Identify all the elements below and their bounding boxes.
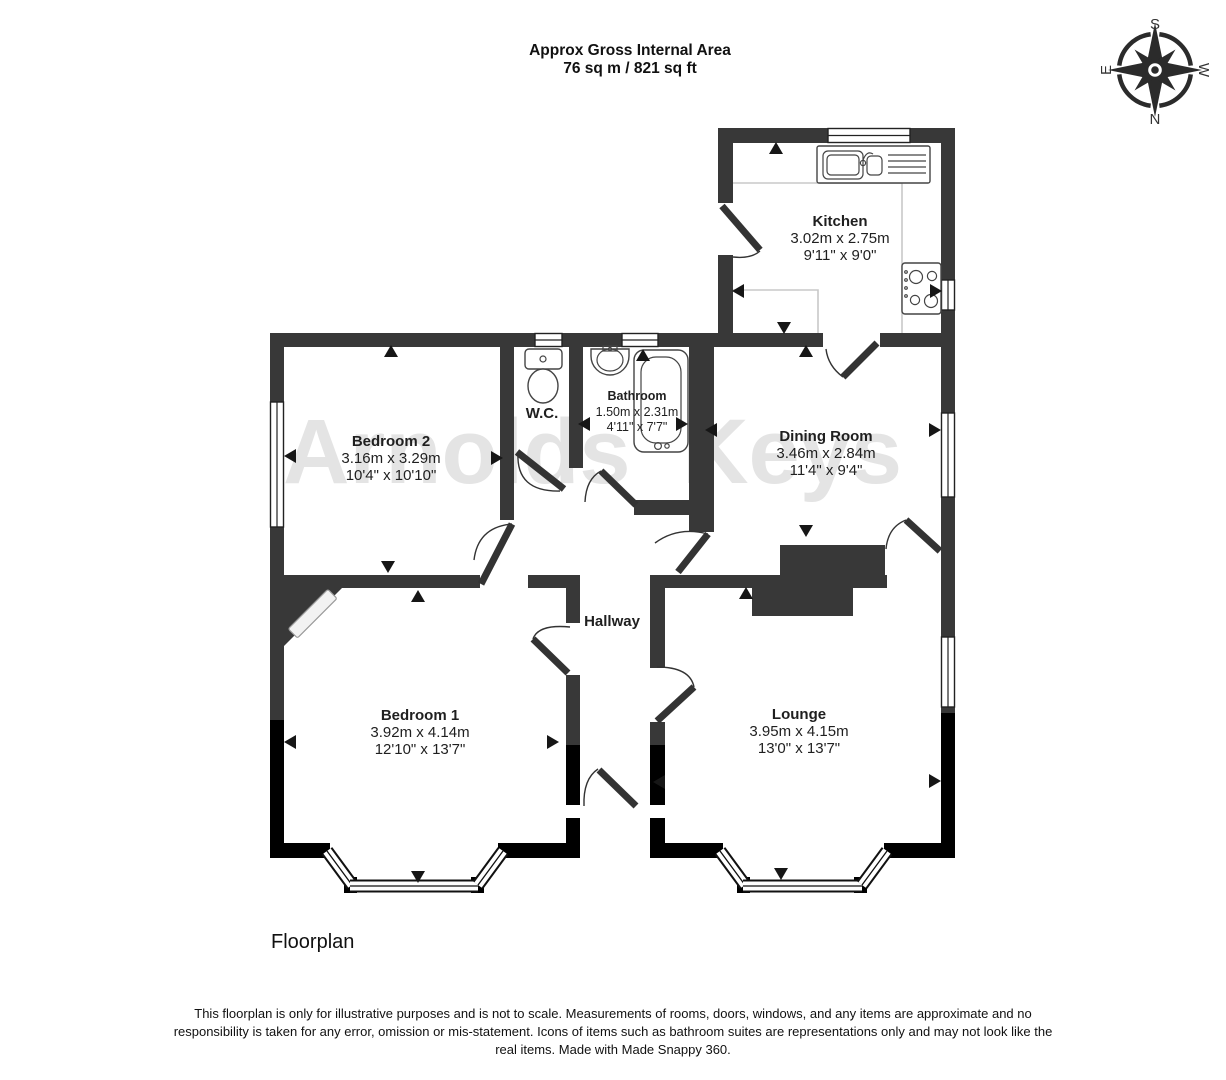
window-dining-right [942, 413, 955, 497]
arrow-right [929, 423, 941, 437]
window-bedroom2-left [271, 402, 284, 527]
room-dim-metric: 3.02m x 2.75m [790, 230, 889, 247]
disclaimer-text: This floorplan is only for illustrative … [173, 1005, 1053, 1059]
room-label-wc: W.C. [526, 405, 559, 422]
room-label-bedroom2: Bedroom 2 3.16m x 3.29m 10'4" x 10'10" [341, 433, 440, 484]
toilet-icon [525, 349, 562, 403]
door-wc [517, 452, 564, 491]
compass-letter-top: S [1150, 16, 1160, 33]
room-name: W.C. [526, 405, 559, 422]
floorplan-caption: Floorplan [271, 931, 354, 954]
compass-letter-bottom: N [1150, 110, 1161, 127]
room-dim-metric: 1.50m x 2.31m [596, 405, 679, 421]
door-lounge [657, 667, 694, 721]
room-name: Bedroom 1 [370, 707, 469, 724]
arrow-down [777, 322, 791, 334]
floorplan-page: Approx Gross Internal Area 76 sq m / 821… [0, 0, 1226, 1080]
bay-window-lounge [720, 851, 887, 886]
room-name: Hallway [584, 613, 640, 630]
title-line2: 76 sq m / 821 sq ft [230, 60, 1030, 78]
door-bedroom1 [533, 627, 570, 674]
compass-letter-right: W [1195, 63, 1212, 78]
arrow-left [284, 449, 296, 463]
room-dim-imperial: 13'0" x 13'7" [749, 740, 848, 757]
floorplan-drawing [0, 0, 1226, 1080]
compass-graphic: S N E W [1098, 16, 1212, 127]
arrow-up [411, 590, 425, 602]
kitchen-sink-icon [817, 146, 930, 183]
arrow-up [769, 142, 783, 154]
room-dim-imperial: 11'4" x 9'4" [776, 462, 875, 479]
basin-icon [591, 346, 629, 375]
title-line1: Approx Gross Internal Area [230, 42, 1030, 60]
window-bathroom [622, 334, 658, 347]
room-dim-metric: 3.16m x 3.29m [341, 450, 440, 467]
door-dining-lounge [886, 520, 940, 551]
arrow-left [732, 284, 744, 298]
room-dim-imperial: 10'4" x 10'10" [341, 467, 440, 484]
room-dim-imperial: 9'11" x 9'0" [790, 247, 889, 264]
room-dim-metric: 3.92m x 4.14m [370, 724, 469, 741]
room-dim-imperial: 12'10" x 13'7" [370, 741, 469, 758]
room-label-kitchen: Kitchen 3.02m x 2.75m 9'11" x 9'0" [790, 213, 889, 264]
window-kitchen-top [828, 129, 910, 143]
arrow-left [284, 735, 296, 749]
door-kitchen-back [722, 206, 760, 257]
door-kitchen-dining [826, 343, 877, 377]
room-dim-imperial: 4'11" x 7'7" [596, 420, 679, 436]
room-label-bedroom1: Bedroom 1 3.92m x 4.14m 12'10" x 13'7" [370, 707, 469, 758]
bay-window-bedroom1 [327, 851, 503, 886]
compass-hub-dot [1151, 66, 1159, 74]
arrow-down [799, 525, 813, 537]
room-label-lounge: Lounge 3.95m x 4.15m 13'0" x 13'7" [749, 706, 848, 757]
chimney-lounge [752, 588, 853, 616]
arrow-right [929, 774, 941, 788]
arrow-up [739, 587, 753, 599]
room-label-bathroom: Bathroom 1.50m x 2.31m 4'11" x 7'7" [596, 389, 679, 436]
window-kitchen-right [942, 280, 955, 310]
compass-rose-icon: S N E W [1095, 8, 1215, 128]
room-name: Dining Room [776, 428, 875, 445]
room-name: Kitchen [790, 213, 889, 230]
arrow-right [547, 735, 559, 749]
arrow-down [381, 561, 395, 573]
chimney-dining [780, 545, 885, 575]
door-dining-hallway [655, 531, 708, 572]
room-dim-metric: 3.95m x 4.15m [749, 723, 848, 740]
room-name: Lounge [749, 706, 848, 723]
page-title: Approx Gross Internal Area 76 sq m / 821… [230, 42, 1030, 78]
room-name: Bathroom [596, 389, 679, 405]
room-label-hallway: Hallway [584, 613, 640, 630]
room-dim-metric: 3.46m x 2.84m [776, 445, 875, 462]
door-front-entrance [584, 769, 636, 806]
room-name: Bedroom 2 [341, 433, 440, 450]
window-lounge-right [942, 637, 955, 707]
window-wc [535, 334, 562, 347]
arrow-down [774, 868, 788, 880]
compass-letter-left: E [1098, 65, 1115, 75]
door-bathroom [585, 471, 636, 505]
room-label-dining-room: Dining Room 3.46m x 2.84m 11'4" x 9'4" [776, 428, 875, 479]
